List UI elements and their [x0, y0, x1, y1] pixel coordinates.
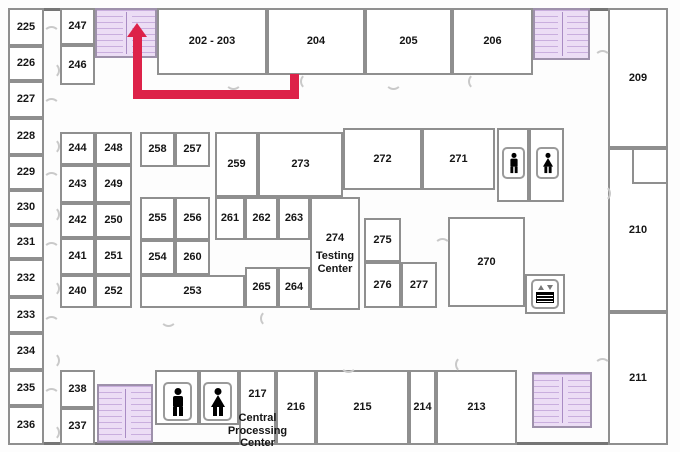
room-274-number: 274: [326, 232, 344, 245]
room-231: 231: [8, 225, 44, 259]
door-arc: [594, 185, 611, 202]
door-arc: [43, 424, 60, 441]
door-arc: [43, 280, 60, 297]
room-249: 249: [95, 165, 132, 203]
room-277: 277: [401, 262, 437, 308]
room-235: 235: [8, 370, 44, 406]
door-arc: [43, 138, 60, 155]
room-237: 237: [60, 408, 95, 445]
door-arc: [43, 62, 60, 79]
stairwell-southwest: [97, 384, 153, 443]
room-261: 261: [215, 197, 245, 240]
room-271: 271: [422, 128, 495, 190]
route-segment-vertical: [133, 36, 142, 94]
door-arc: [43, 352, 60, 369]
mens-restroom-sign: [502, 147, 525, 179]
room-253: 253: [140, 275, 245, 308]
room-274-name: Testing Center: [312, 250, 358, 275]
room-209: 209: [608, 8, 668, 148]
room-202-203: 202 - 203: [157, 8, 267, 75]
room-250: 250: [95, 203, 132, 238]
womens-restroom-sign: [536, 147, 559, 179]
door-arc: [43, 388, 60, 405]
room-234: 234: [8, 333, 44, 370]
room-273: 273: [258, 132, 343, 197]
route-arrow-icon: [127, 23, 147, 37]
room-232: 232: [8, 259, 44, 297]
mens-restroom-sign-bottom: [163, 382, 192, 421]
room-241: 241: [60, 238, 95, 275]
door-arc: [43, 316, 60, 333]
stairwell-southeast: [532, 372, 592, 428]
door-arc: [300, 73, 317, 90]
room-205: 205: [365, 8, 452, 75]
room-243: 243: [60, 165, 95, 203]
room-225: 225: [8, 8, 44, 46]
womens-restroom-sign-bottom: [203, 382, 232, 421]
elevator-up-down-arrows-icon: [538, 285, 553, 290]
room-248: 248: [95, 132, 132, 165]
alcove: [632, 148, 668, 184]
floor-plan-map: 225 226 227 228 229 230 231 232 233 234 …: [0, 0, 680, 452]
room-214: 214: [409, 370, 436, 445]
door-arc: [385, 73, 402, 90]
room-262: 262: [245, 197, 278, 240]
room-233: 233: [8, 297, 44, 333]
elevator-sign: [531, 279, 559, 309]
room-255: 255: [140, 197, 175, 240]
door-arc: [434, 238, 451, 255]
male-restroom-icon: [171, 388, 185, 416]
room-217-number: 217: [248, 388, 266, 401]
room-236: 236: [8, 406, 44, 445]
room-263: 263: [278, 197, 310, 240]
door-arc: [340, 356, 357, 373]
stairwell-northwest: [95, 8, 157, 58]
room-274-testing-center: 274 Testing Center: [310, 197, 360, 310]
door-arc: [260, 310, 277, 327]
room-229: 229: [8, 155, 44, 190]
room-211: 211: [608, 312, 668, 445]
room-206: 206: [452, 8, 533, 75]
room-244: 244: [60, 132, 95, 165]
room-230: 230: [8, 190, 44, 225]
room-260: 260: [175, 240, 210, 275]
elevator-icon: [536, 292, 554, 303]
room-238: 238: [60, 370, 95, 408]
room-242: 242: [60, 203, 95, 238]
door-arc: [43, 242, 60, 259]
room-227: 227: [8, 81, 44, 118]
door-arc: [43, 172, 60, 189]
room-246: 246: [60, 45, 95, 85]
room-252: 252: [95, 275, 132, 308]
door-arc: [594, 50, 611, 67]
door-arc: [43, 98, 60, 115]
route-segment-horizontal: [133, 90, 299, 99]
room-251: 251: [95, 238, 132, 275]
room-258: 258: [140, 132, 175, 167]
room-240: 240: [60, 275, 95, 308]
room-247: 247: [60, 8, 95, 45]
male-restroom-icon: [508, 153, 518, 173]
stairwell-northeast: [533, 8, 590, 60]
door-arc: [160, 310, 177, 327]
room-259: 259: [215, 132, 258, 197]
door-arc: [455, 356, 472, 373]
room-264: 264: [278, 267, 310, 308]
room-213: 213: [436, 370, 517, 445]
door-arc: [43, 206, 60, 223]
door-arc: [43, 26, 60, 43]
door-arc: [594, 358, 611, 375]
female-restroom-icon: [542, 153, 552, 173]
room-270: 270: [448, 217, 525, 307]
female-restroom-icon: [211, 388, 225, 416]
room-228: 228: [8, 118, 44, 155]
room-204: 204: [267, 8, 365, 75]
door-arc: [225, 73, 242, 90]
room-254: 254: [140, 240, 175, 275]
room-257: 257: [175, 132, 210, 167]
room-256: 256: [175, 197, 210, 240]
room-276: 276: [364, 262, 401, 308]
room-265: 265: [245, 267, 278, 308]
door-arc: [468, 73, 485, 90]
room-215: 215: [316, 370, 409, 445]
room-272: 272: [343, 128, 422, 190]
room-217-central-processing-center: 217 Central Processing Center: [239, 370, 276, 445]
room-226: 226: [8, 46, 44, 81]
room-275: 275: [364, 218, 401, 262]
